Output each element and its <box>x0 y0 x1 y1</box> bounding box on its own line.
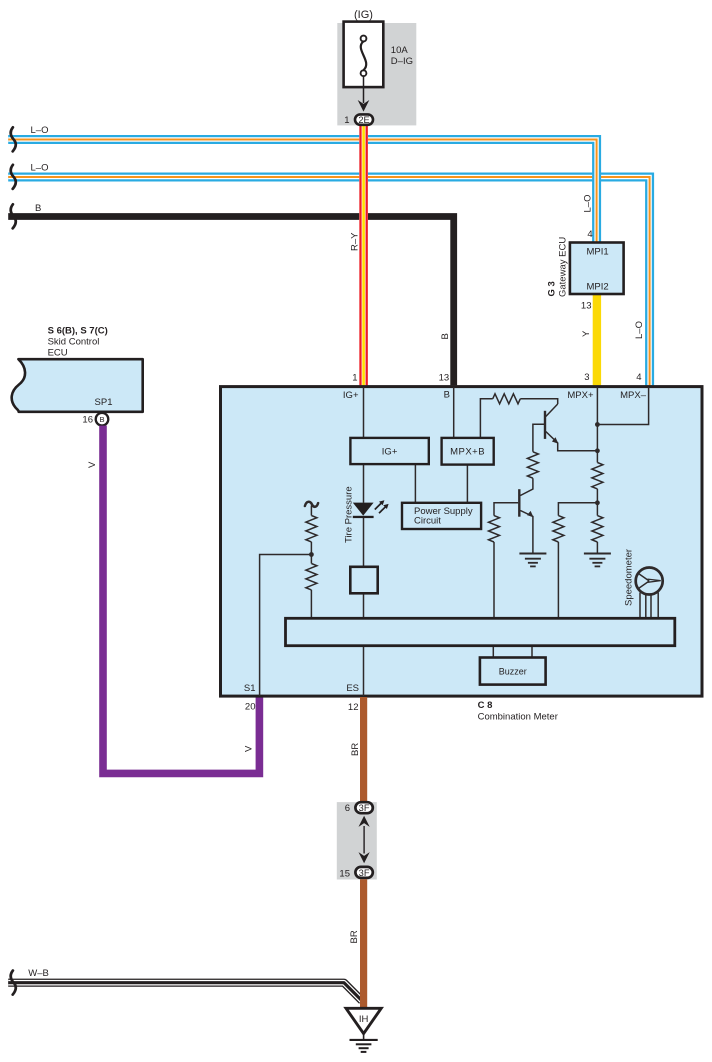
svg-text:3F: 3F <box>359 803 370 813</box>
svg-text:BR: BR <box>349 930 360 943</box>
svg-text:B: B <box>440 333 451 339</box>
svg-text:L–O: L–O <box>634 321 645 339</box>
svg-text:R–Y: R–Y <box>350 232 361 251</box>
svg-text:S 6(B), S 7(C): S 6(B), S 7(C) <box>48 326 108 337</box>
svg-text:W–B: W–B <box>28 968 49 979</box>
svg-text:IH: IH <box>359 1014 369 1025</box>
svg-text:10A: 10A <box>391 45 409 56</box>
svg-text:B: B <box>444 390 450 401</box>
svg-text:16: 16 <box>82 415 93 426</box>
svg-text:Buzzer: Buzzer <box>499 667 527 677</box>
svg-text:MPX+: MPX+ <box>567 390 594 401</box>
svg-text:ES: ES <box>346 683 359 694</box>
svg-text:Circuit: Circuit <box>414 515 441 526</box>
svg-text:C 8: C 8 <box>478 700 493 711</box>
svg-text:V: V <box>87 461 98 468</box>
svg-text:B: B <box>35 203 41 214</box>
svg-text:L–O: L–O <box>31 163 49 174</box>
svg-text:13: 13 <box>581 301 592 312</box>
svg-text:B: B <box>99 415 104 424</box>
svg-text:MPX+B: MPX+B <box>450 447 485 458</box>
svg-text:S1: S1 <box>244 683 256 694</box>
svg-text:Speedometer: Speedometer <box>624 549 635 606</box>
svg-text:4: 4 <box>587 229 592 240</box>
svg-text:L–O: L–O <box>31 125 49 136</box>
svg-text:13: 13 <box>439 373 450 384</box>
svg-text:MPI1: MPI1 <box>587 247 609 258</box>
svg-text:1: 1 <box>344 115 349 126</box>
svg-text:ECU: ECU <box>48 348 68 359</box>
svg-text:Gateway ECU: Gateway ECU <box>558 237 569 297</box>
svg-text:L–O: L–O <box>583 195 594 213</box>
svg-text:15: 15 <box>339 869 350 880</box>
svg-text:IG+: IG+ <box>382 447 398 458</box>
svg-text:MPI2: MPI2 <box>587 282 609 293</box>
svg-text:BR: BR <box>350 743 361 756</box>
svg-text:MPX–: MPX– <box>620 390 647 401</box>
svg-text:G 3: G 3 <box>547 281 558 296</box>
svg-text:4: 4 <box>636 372 641 383</box>
svg-text:6: 6 <box>345 803 350 814</box>
svg-text:Skid Control: Skid Control <box>48 337 100 348</box>
svg-text:20: 20 <box>245 702 256 713</box>
svg-text:V: V <box>244 745 255 752</box>
svg-text:Y: Y <box>581 330 592 337</box>
svg-text:2E: 2E <box>358 115 369 125</box>
svg-text:3: 3 <box>584 372 589 383</box>
svg-text:Tire Pressure: Tire Pressure <box>344 486 355 543</box>
svg-text:12: 12 <box>348 702 359 713</box>
svg-text:(IG): (IG) <box>354 9 373 21</box>
svg-text:SP1: SP1 <box>95 397 113 408</box>
svg-text:D–IG: D–IG <box>391 56 413 67</box>
svg-text:1: 1 <box>352 373 357 384</box>
svg-text:3F: 3F <box>359 868 370 878</box>
svg-text:IG+: IG+ <box>343 390 359 401</box>
svg-text:Combination Meter: Combination Meter <box>478 712 558 723</box>
